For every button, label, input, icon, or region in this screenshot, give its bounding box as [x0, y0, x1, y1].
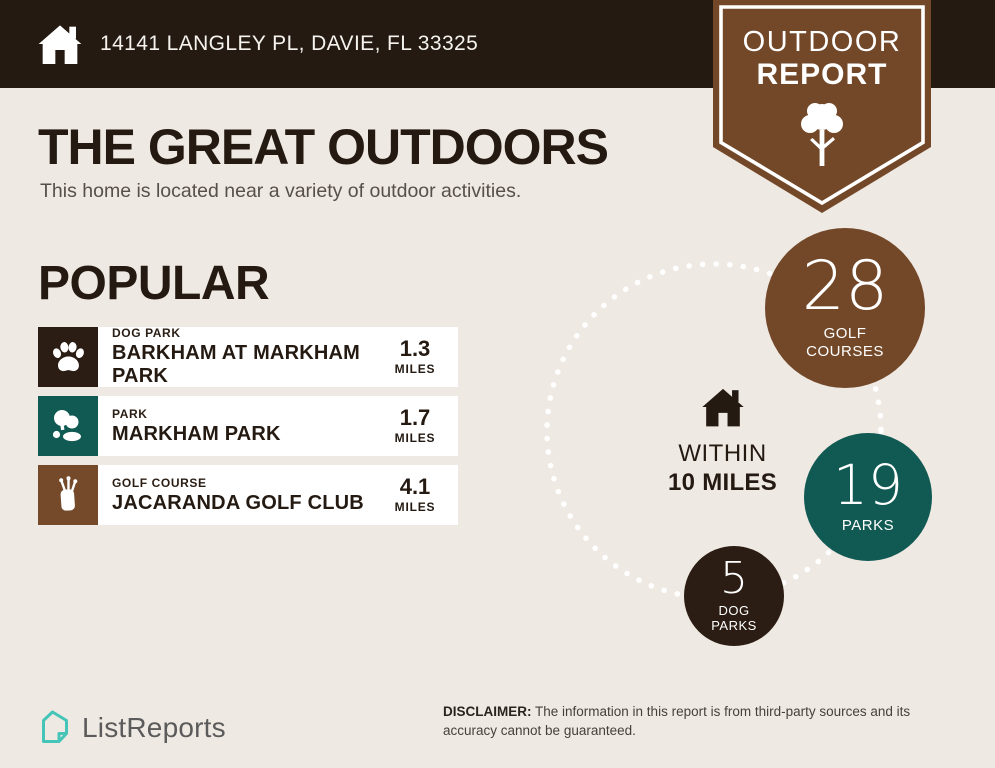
badge-title-line1: OUTDOOR: [713, 26, 931, 59]
golf-bag-icon: [38, 465, 98, 525]
badge-title-line2: REPORT: [713, 58, 931, 92]
stat-parks: 19 PARKS: [804, 433, 932, 561]
disclaimer-label: DISCLAIMER:: [443, 704, 532, 719]
within-text: WITHIN: [650, 440, 795, 468]
disclaimer-text: DISCLAIMER: The information in this repo…: [443, 703, 958, 741]
item-category: DOG PARK: [112, 326, 378, 340]
item-name: BARKHAM AT MARKHAM PARK: [112, 342, 378, 388]
park-trees-icon: [38, 396, 98, 456]
brand-name: ListReports: [82, 712, 226, 744]
popular-section-title: POPULAR: [38, 256, 269, 311]
item-distance: 4.1: [400, 476, 431, 498]
home-icon: [36, 21, 84, 67]
stat-label: DOG PARKS: [706, 603, 762, 634]
listreports-logo: ListReports: [38, 706, 226, 750]
home-marker-icon: [699, 385, 747, 429]
item-distance-unit: MILES: [395, 500, 436, 514]
page-subtitle: This home is located near a variety of o…: [40, 180, 521, 203]
stat-dog-parks: 5 DOG PARKS: [684, 546, 784, 646]
within-distance: 10 MILES: [650, 469, 795, 497]
page-title: THE GREAT OUTDOORS: [38, 118, 608, 176]
stat-value: 28: [802, 255, 889, 320]
outdoor-report-page: 14141 LANGLEY PL, DAVIE, FL 33325 OUTDOO…: [0, 0, 995, 768]
list-item-golf-course: GOLF COURSE JACARANDA GOLF CLUB 4.1 MILE…: [38, 465, 458, 525]
stat-label: GOLF COURSES: [797, 325, 893, 361]
stat-label: PARKS: [842, 517, 894, 535]
item-distance: 1.3: [400, 338, 431, 360]
item-category: PARK: [112, 407, 378, 421]
item-distance: 1.7: [400, 407, 431, 429]
stat-value: 5: [720, 558, 748, 600]
item-name: MARKHAM PARK: [112, 423, 378, 446]
paw-icon: [38, 327, 98, 387]
item-distance-unit: MILES: [395, 362, 436, 376]
item-name: JACARANDA GOLF CLUB: [112, 492, 378, 515]
list-item-park: PARK MARKHAM PARK 1.7 MILES: [38, 396, 458, 456]
stat-value: 19: [833, 459, 903, 511]
within-radius-label: WITHIN 10 MILES: [650, 385, 795, 497]
stat-golf-courses: 28 GOLF COURSES: [765, 228, 925, 388]
outdoor-report-badge: OUTDOOR REPORT: [713, 0, 931, 214]
listreports-house-icon: [38, 708, 72, 748]
list-item-dog-park: DOG PARK BARKHAM AT MARKHAM PARK 1.3 MIL…: [38, 327, 458, 387]
popular-list: DOG PARK BARKHAM AT MARKHAM PARK 1.3 MIL…: [38, 327, 458, 525]
item-category: GOLF COURSE: [112, 476, 378, 490]
item-distance-unit: MILES: [395, 431, 436, 445]
tree-icon: [790, 100, 854, 172]
property-address: 14141 LANGLEY PL, DAVIE, FL 33325: [100, 32, 478, 56]
